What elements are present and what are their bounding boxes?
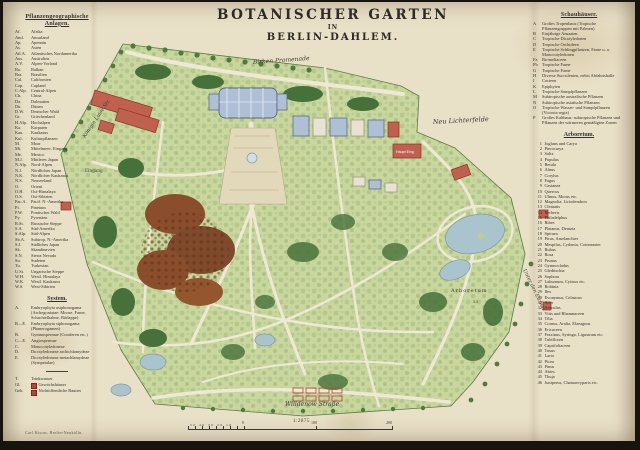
- arboretum-entry-label: Picea: [545, 360, 626, 365]
- arboretum-entry-number: 46: [533, 381, 542, 386]
- legend-entry: Bra. Brasilien: [15, 73, 99, 78]
- legend-entry: Cap. Capland: [15, 84, 99, 89]
- arboretum-heading: Arboretum.: [533, 132, 625, 139]
- arboretum-entry-label: Taxus: [545, 349, 626, 354]
- legend-entry: Su. Sudeten: [15, 259, 99, 264]
- left-legend: Pflanzengeographische Anlagen. Af. Afrik…: [15, 14, 99, 396]
- legend-entry: S.A. Süd-Amerika: [15, 227, 99, 232]
- arboretum-entry-label: Pterocarya: [545, 147, 626, 152]
- arboretum-entry-label: Juniperus, Chamaecyparis etc.: [545, 381, 626, 386]
- building-color-swatch: [31, 390, 37, 396]
- legend-entry: Kul. Kulturpflanzen: [15, 137, 99, 142]
- arboretum-entry-label: Pinus: [545, 365, 626, 370]
- schauhaus-entry-label: Großes Kalthaus: subtropische Pflanzen u…: [542, 116, 625, 126]
- legend-entry: W.S. West-Sibirien: [15, 285, 99, 290]
- system-entry-abbr: B.: [15, 333, 31, 338]
- schauhaus-entry-key: P: [533, 116, 542, 126]
- legend-entry: Aml. Amurland: [15, 36, 99, 41]
- legend-entry: O. Orient: [15, 185, 99, 190]
- map-subtitle: BERLIN-DAHLEM.: [198, 32, 468, 43]
- legend-entry-label: Apennin: [31, 41, 99, 46]
- legend-entry: Cal. Californien: [15, 78, 99, 83]
- legend-entry: S.J. Südliches Japan: [15, 243, 99, 248]
- system-list: A. Embryophyta asiphonogama (Archegoniat…: [15, 306, 99, 366]
- arboretum-entry-label: Corylus: [545, 174, 626, 179]
- arboretum-entry-label: Philadelphus: [545, 216, 626, 221]
- legend-entry: N.S. Neuseeland: [15, 179, 99, 184]
- legend-entry: Ap. Apennin: [15, 41, 99, 46]
- system-entry: A. Embryophyta asiphonogama (Archegoniat…: [15, 306, 99, 321]
- arboretum-label: Arboretum: [450, 288, 488, 294]
- parterre-garden: [219, 128, 287, 204]
- neu-lichterfelde-label: Neu Lichterfelde: [432, 115, 489, 126]
- legend-entry: N.K. Nördlicher Kaukasus: [15, 174, 99, 179]
- legend-entry-label: West-Sibirien: [31, 285, 99, 290]
- system-entry: C—E. Angiospermae: [15, 339, 99, 344]
- system-entry-abbr: C—E.: [15, 339, 31, 344]
- legend-entry: Da. Dalmatien: [15, 100, 99, 105]
- system-entry: B. Gymnospermae (Coniferen etc.): [15, 333, 99, 338]
- schauhaeuser-list: A Großes Tropenhaus (Tropische Pflanzeng…: [533, 22, 625, 126]
- arboretum-list: 1 Juglans und Carya 2 Pterocarya 3 Salix…: [533, 142, 625, 386]
- legend-entry: Pac.A. Pacif. N.-Amerika: [15, 200, 99, 205]
- legend-entry: H.Alp. Hochalpen: [15, 121, 99, 126]
- system-heading: System.: [15, 296, 99, 303]
- right-legend: Schauhäuser. A Großes Tropenhaus (Tropis…: [533, 12, 625, 386]
- system-entry-label: Dicotyledoneae metachlamydeae (Sympetala…: [31, 356, 99, 366]
- scale-ratio: 1:2875: [293, 419, 310, 424]
- scale-mark-200: 200: [386, 420, 392, 425]
- legend-entry: D.W. Deutscher Wald: [15, 110, 99, 115]
- system-entry-label: Gymnospermae (Coniferen etc.): [31, 333, 99, 338]
- legend-entry: Ka. Karpaten: [15, 126, 99, 131]
- legend-entry: Sk. Skandinavien: [15, 248, 99, 253]
- printer-credit: Carl Kisow, Berlin-Neukölln.: [25, 430, 83, 435]
- legend-entry: S.N. Sierra Nevada: [15, 254, 99, 259]
- system-entry-label: Embryophyta siphonogama (Phanerogamen): [31, 322, 99, 332]
- system-entry-abbr: A.: [15, 306, 31, 321]
- system-entry-label: Embryophyta asiphonogama (Archegoniatae:…: [31, 306, 99, 321]
- scale-line: [188, 429, 393, 430]
- symbols-list: T. Trinkwasser Gl. Gewächshäuser Geb. Ni…: [15, 377, 99, 396]
- arboretum-entry-label: Vitis und Rhamnaceen: [545, 312, 626, 317]
- arboretum-entry-label: Larix: [545, 354, 626, 359]
- arboretum-entry-label: Rubus: [545, 248, 626, 253]
- legend-entry: W.K. Westl. Kaukasus: [15, 280, 99, 285]
- legend-entry: Af. Afrika: [15, 30, 99, 35]
- legend-entry: Mi. Mittelmeer; Eingang: [15, 147, 99, 152]
- schauhaus-entry: P Großes Kalthaus: subtropische Pflanzen…: [533, 116, 625, 126]
- schauhaus-entry-key: H: [533, 74, 542, 79]
- legend-entry: Gr. Griechenland: [15, 115, 99, 120]
- legend-entry: Ba. Balkan: [15, 68, 99, 73]
- arboretum-entry: 46 Juniperus, Chamaecyparis etc.: [533, 381, 625, 386]
- arboretum-entry-label: Populus: [545, 158, 626, 163]
- map-sheet: Birken Promenade Königin Luise Str. Eing…: [3, 2, 635, 441]
- map-title: BOTANISCHER GARTEN: [198, 7, 468, 23]
- scale-left-numbers: 50 40 30 20 10: [190, 423, 233, 427]
- plant-geography-list: Af. Afrika Aml. Amurland Ap. Apennin As.…: [15, 30, 99, 290]
- arboretum-entry-label: Betula: [545, 163, 626, 168]
- legend-entry-label: Kulturpflanzen: [31, 137, 99, 142]
- system-entry: E. Dicotyledoneae metachlamydeae (Sympet…: [15, 356, 99, 366]
- arboretum-entry-label: Evonymus, Celastrus: [545, 296, 626, 301]
- legend-entry: C.Alp. Central-Alpen: [15, 89, 99, 94]
- arboretum-entry-label: Mespilus, Cydonia, Cotoneaster: [545, 243, 626, 248]
- legend-entry: Aus. Australien: [15, 57, 99, 62]
- map-title-block: BOTANISCHER GARTEN IN BERLIN-DAHLEM.: [198, 7, 468, 43]
- arboretum-entry-label: Caprifoliaceen: [545, 344, 626, 349]
- legend-entry: R.St. Russische Steppe: [15, 222, 99, 227]
- tropenhaus-building: [209, 88, 287, 118]
- system-entry: B—E. Embryophyta siphonogama (Phanerogam…: [15, 322, 99, 332]
- system-entry-label: Angiospermae: [31, 339, 99, 344]
- legend-entry-abbr: W.S.: [15, 285, 31, 290]
- legend-entry: Atl.A. Atlantisches Nordamerika: [15, 52, 99, 57]
- symbol-entry-abbr: Geb.: [15, 389, 31, 396]
- legend-entry: P.W. Pontischer Wald: [15, 211, 99, 216]
- legend-entry: A.V. Alpen-Vorland: [15, 62, 99, 67]
- legend-entry: O.H. Ost-Himalaya: [15, 190, 99, 195]
- left-legend-heading: Pflanzengeographische Anlagen.: [15, 14, 99, 27]
- symbol-entry: Geb. Nichtöffentliche Bauten: [15, 389, 99, 396]
- willdenow-street-label: Willdenow Straße: [285, 401, 340, 408]
- legend-entry: M.J. Mittleres Japan: [15, 158, 99, 163]
- arboretum-entry-label: Robinia: [545, 285, 626, 290]
- scale-mark-0: 0: [242, 420, 244, 425]
- haupt-eingang-label: Haupt Eing.: [396, 150, 415, 154]
- system-entry-abbr: E.: [15, 356, 31, 366]
- arboretum-number-label: 23: [473, 299, 479, 304]
- legend-entry: Ch. China: [15, 94, 99, 99]
- scale-bar: 1:2875 50 40 30 20 10 0 100 200: [188, 419, 398, 437]
- arboretum-entry-label: Abies: [545, 370, 626, 375]
- legend-divider: [46, 371, 68, 372]
- symbol-entry-label: Nichtöffentliche Bauten: [39, 389, 100, 396]
- building-color-swatch: [31, 383, 37, 389]
- system-entry-abbr: B—E.: [15, 322, 31, 332]
- scale-mark-100: 100: [311, 420, 317, 425]
- map-title-in: IN: [198, 24, 468, 31]
- pond-island: [478, 233, 485, 240]
- schauhaeuser-heading: Schauhäuser.: [533, 12, 625, 19]
